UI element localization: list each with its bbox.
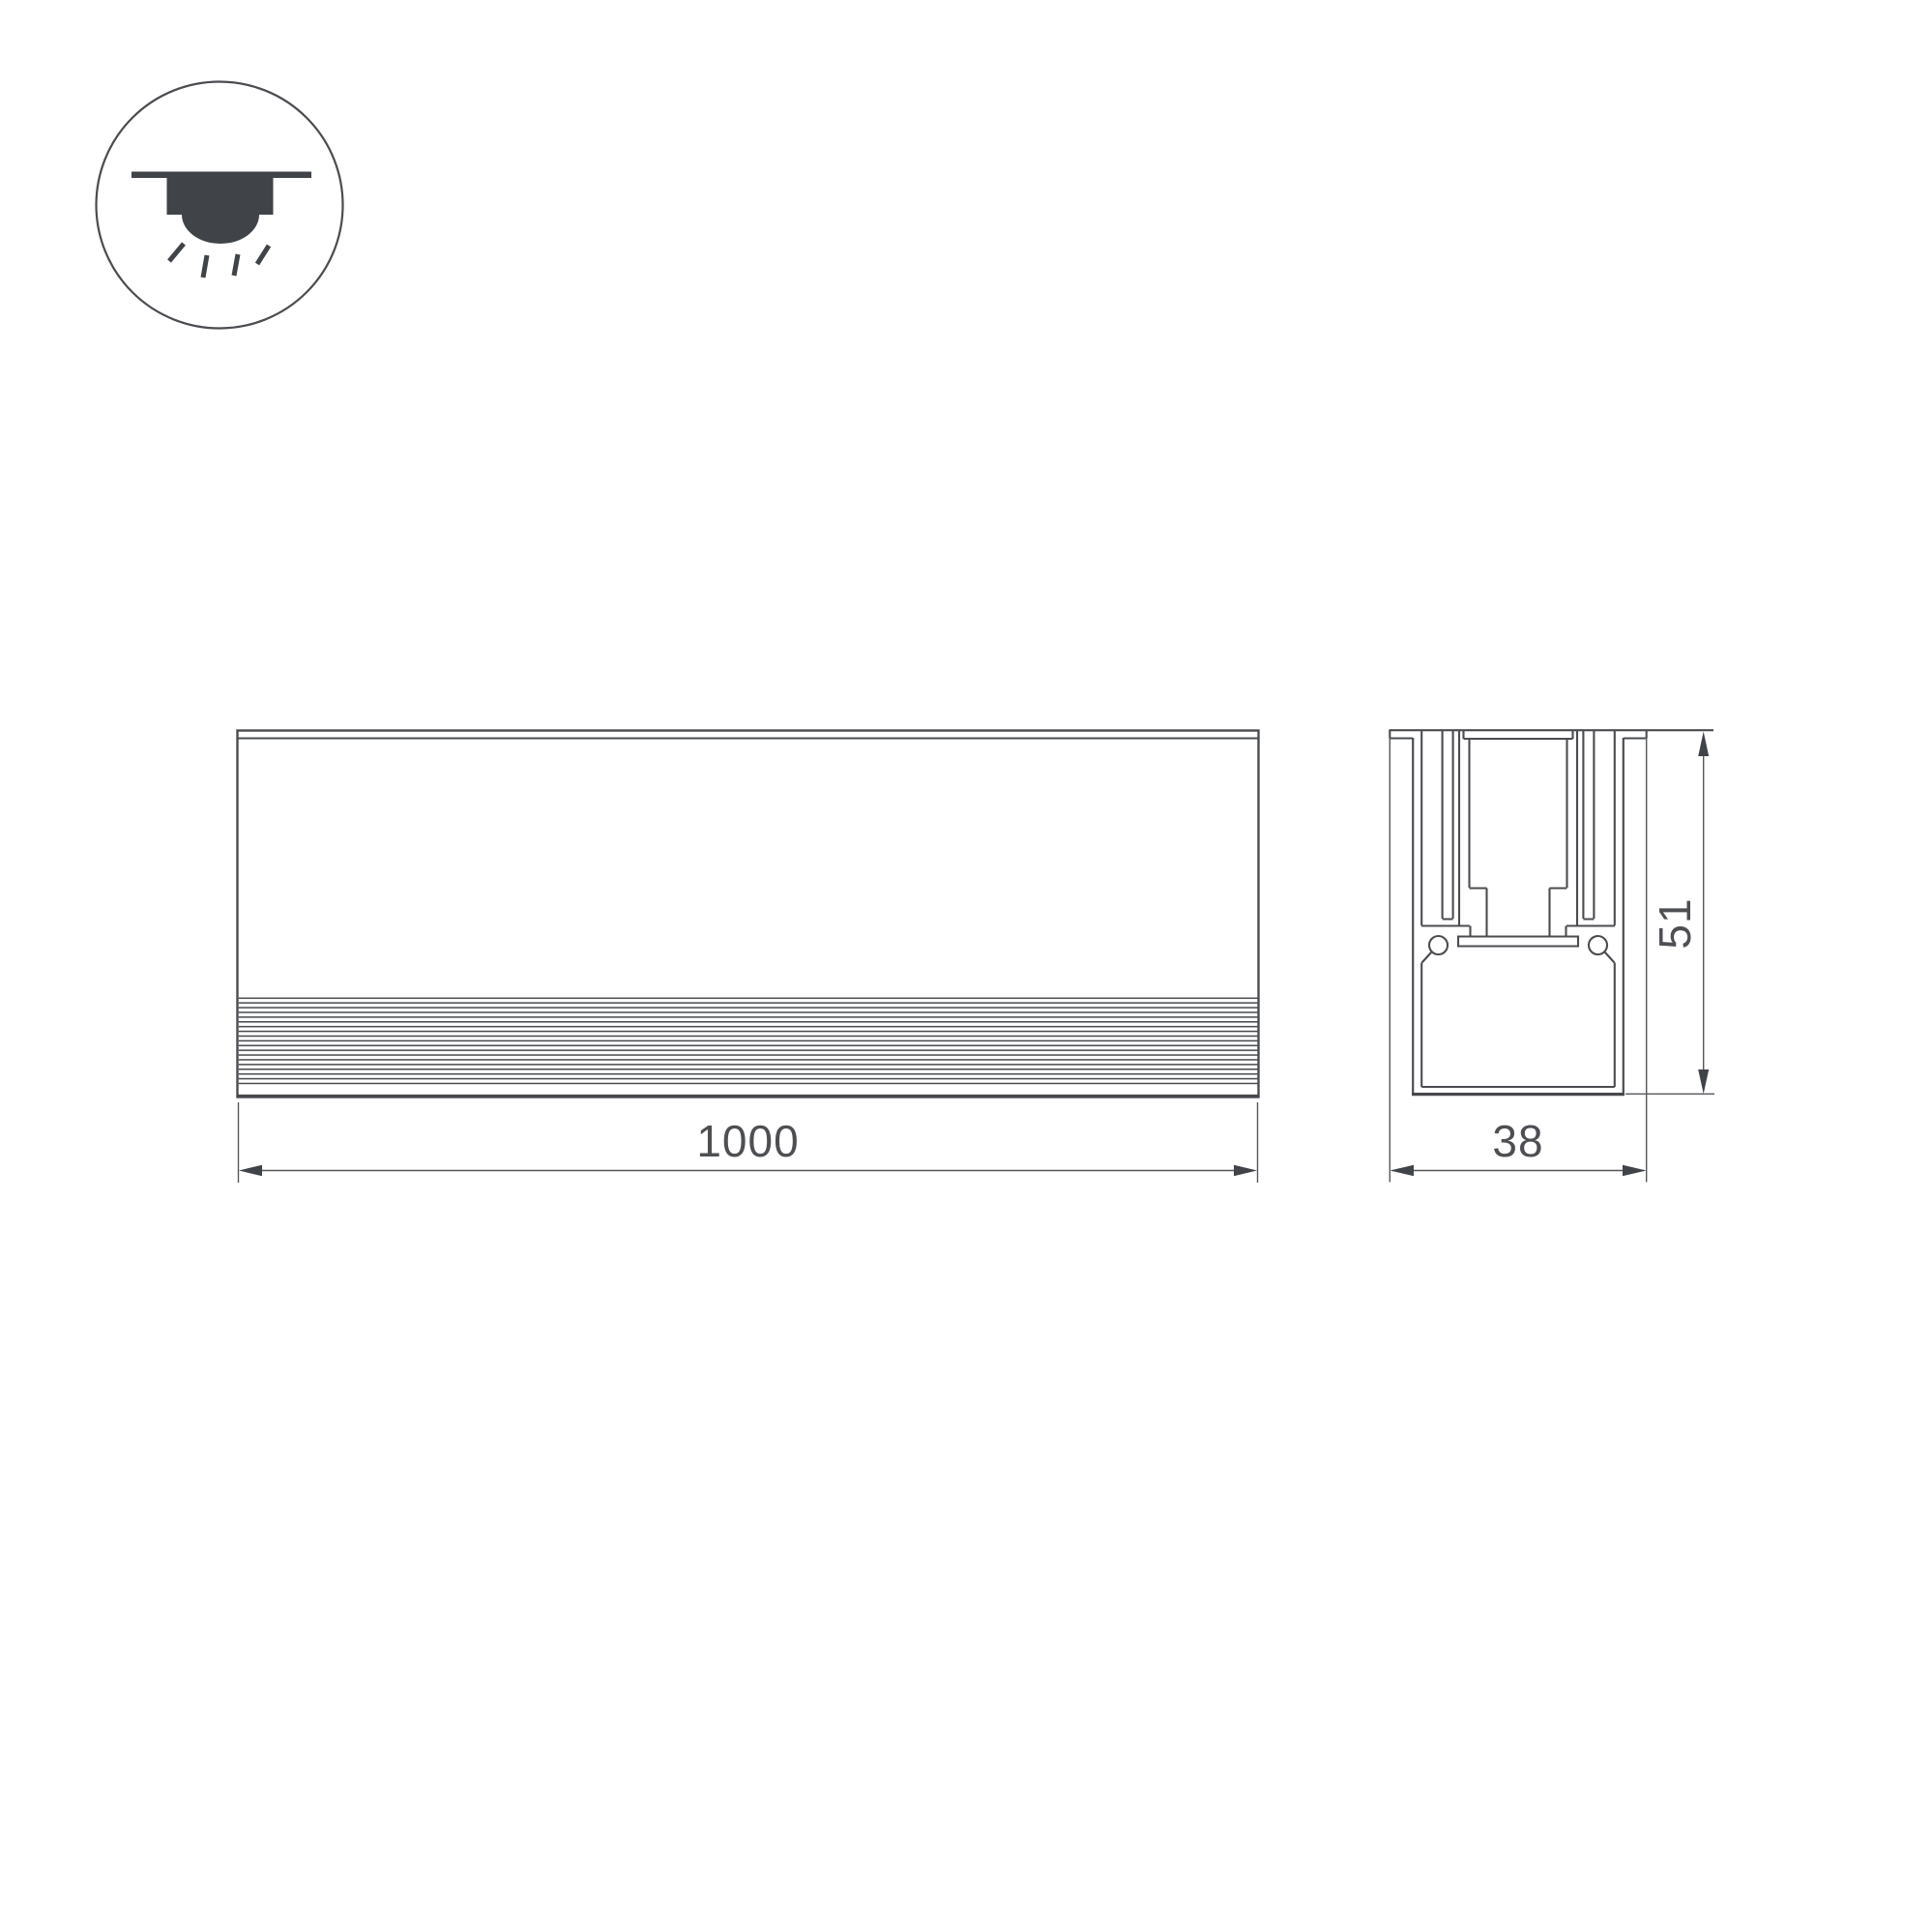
length-dimension: 1000 — [239, 1102, 1258, 1183]
section-divider-walls — [1443, 730, 1595, 920]
section-inner-wall-skins — [1421, 730, 1615, 925]
section-base-shelf — [1458, 937, 1578, 947]
clip-circle-right — [1589, 936, 1607, 954]
section-central-channel — [1459, 730, 1577, 937]
front-view — [237, 731, 1260, 1098]
arrowhead-down-icon — [1698, 1069, 1709, 1094]
arrowhead-right-icon — [1234, 1165, 1257, 1177]
ceiling-line-shape — [132, 172, 311, 179]
width-dimension-label: 38 — [1492, 1116, 1543, 1166]
clip-chamfers — [1422, 952, 1615, 963]
arrowhead-left-icon — [1390, 1165, 1415, 1177]
height-dimension-label: 51 — [1650, 897, 1700, 949]
clip-circle-left — [1429, 936, 1448, 954]
section-outer-walls — [1413, 738, 1624, 1094]
technical-drawing: 1000 38 — [0, 0, 1932, 1932]
front-view-ribbed-diffuser-stripes — [239, 998, 1258, 1085]
arrowhead-left-icon — [239, 1165, 262, 1177]
drawing-canvas: 1000 38 — [0, 0, 1932, 1932]
arrowhead-up-icon — [1698, 732, 1709, 757]
arrowhead-right-icon — [1623, 1165, 1647, 1177]
length-dimension-label: 1000 — [696, 1116, 799, 1166]
section-diffuser-box-inner — [1421, 963, 1615, 1088]
mounting-type-icon-group — [97, 82, 343, 329]
height-dimension: 51 — [1625, 732, 1714, 1095]
width-dimension: 38 — [1390, 738, 1646, 1183]
recessed-housing-shape — [167, 178, 274, 215]
section-hook-ledges — [1421, 926, 1615, 937]
